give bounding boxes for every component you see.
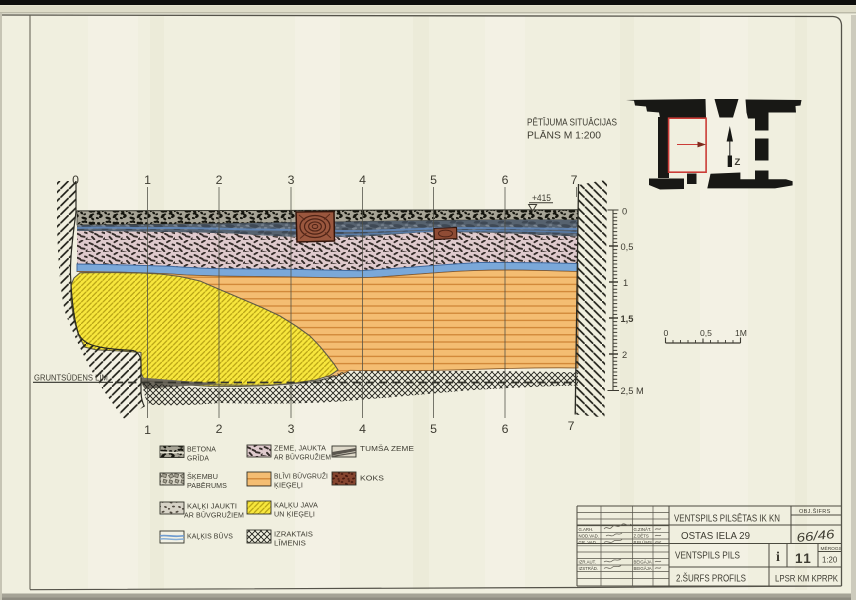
svg-text:P.BLŪMS: P.BLŪMS bbox=[634, 540, 652, 545]
svg-text:7: 7 bbox=[568, 419, 575, 433]
svg-text:PLĀNS M 1:200: PLĀNS M 1:200 bbox=[527, 130, 601, 142]
svg-text:i: i bbox=[776, 550, 780, 565]
svg-text:VENTSPILS PILSĒTAS IK KN: VENTSPILS PILSĒTAS IK KN bbox=[674, 513, 780, 525]
svg-text:LĪMENIS: LĪMENIS bbox=[274, 539, 306, 548]
svg-text:2: 2 bbox=[216, 173, 223, 187]
svg-text:LPSR KM KPRPK: LPSR KM KPRPK bbox=[775, 573, 839, 584]
svg-text:BEIGĀJA: BEIGĀJA bbox=[634, 560, 652, 565]
svg-text:2: 2 bbox=[216, 422, 223, 436]
svg-text:KAĻĶIS BŪVS: KAĻĶIS BŪVS bbox=[187, 532, 233, 541]
svg-text:IZRAKTAIS: IZRAKTAIS bbox=[274, 530, 313, 539]
svg-text:0: 0 bbox=[664, 328, 669, 338]
svg-text:VENTSPILS PILS: VENTSPILS PILS bbox=[675, 551, 740, 562]
svg-text:Z.DĒTS: Z.DĒTS bbox=[634, 534, 649, 539]
svg-text:2: 2 bbox=[622, 350, 627, 360]
svg-text:PĒTĪJUMA SITUĀCIJAS: PĒTĪJUMA SITUĀCIJAS bbox=[527, 117, 617, 129]
svg-text:KOKS: KOKS bbox=[360, 474, 384, 483]
svg-text:2.ŠURFS PROFILS: 2.ŠURFS PROFILS bbox=[676, 572, 746, 585]
svg-text:AR BŪVGRUŽIEM: AR BŪVGRUŽIEM bbox=[184, 511, 244, 520]
svg-text:AR BŪVGRUŽIEM: AR BŪVGRUŽIEM bbox=[274, 453, 331, 462]
svg-text:3: 3 bbox=[288, 422, 295, 436]
svg-text:1M: 1M bbox=[735, 328, 747, 338]
svg-text:11: 11 bbox=[795, 551, 812, 566]
svg-text:UN ĶIEĢEĻI: UN ĶIEĢEĻI bbox=[274, 510, 315, 519]
svg-text:BETONA: BETONA bbox=[187, 445, 217, 454]
svg-text:IZSTRĀD.: IZSTRĀD. bbox=[579, 566, 599, 571]
svg-text:0,5: 0,5 bbox=[621, 242, 634, 252]
svg-text:Z: Z bbox=[735, 157, 741, 168]
svg-text:ŠĶEMBU: ŠĶEMBU bbox=[187, 472, 218, 481]
svg-text:BLĪVI BŪVGRUŽI: BLĪVI BŪVGRUŽI bbox=[274, 472, 328, 481]
svg-text:OSTAS IELA 29: OSTAS IELA 29 bbox=[681, 531, 750, 542]
svg-text:NOD.VAD.: NOD.VAD. bbox=[579, 534, 599, 539]
svg-text:1: 1 bbox=[144, 423, 151, 437]
svg-text:G.ZINĀT.: G.ZINĀT. bbox=[634, 527, 652, 532]
svg-text:OBJ.ŠIFRS: OBJ.ŠIFRS bbox=[799, 508, 831, 515]
svg-text:1: 1 bbox=[623, 278, 628, 288]
svg-text:6: 6 bbox=[502, 173, 509, 187]
svg-text:GR. VAD.: GR. VAD. bbox=[579, 540, 598, 545]
svg-text:GRUNTSŪDENS LĪM.: GRUNTSŪDENS LĪM. bbox=[34, 374, 110, 383]
svg-text:TUMŠA ZEME: TUMŠA ZEME bbox=[360, 444, 414, 453]
svg-text:5: 5 bbox=[430, 173, 437, 187]
svg-text:KAĻĶI JAUKTI: KAĻĶI JAUKTI bbox=[187, 502, 237, 511]
svg-text:IZR.AUT.: IZR.AUT. bbox=[579, 560, 596, 565]
svg-text:MĒROGS: MĒROGS bbox=[821, 545, 842, 552]
svg-text:ZEME, JAUKTA: ZEME, JAUKTA bbox=[274, 444, 327, 453]
svg-text:KAĻĶU JAVA: KAĻĶU JAVA bbox=[274, 501, 319, 510]
svg-text:5: 5 bbox=[430, 422, 437, 436]
svg-text:6: 6 bbox=[502, 422, 509, 436]
svg-text:1,5: 1,5 bbox=[621, 314, 634, 324]
svg-text:3: 3 bbox=[288, 173, 295, 187]
svg-text:PABĒRUMS: PABĒRUMS bbox=[187, 481, 227, 490]
svg-text:7: 7 bbox=[571, 173, 578, 187]
svg-text:4: 4 bbox=[359, 173, 366, 187]
svg-text:2,5 M: 2,5 M bbox=[621, 386, 644, 396]
svg-text:4: 4 bbox=[359, 422, 366, 436]
svg-text:0: 0 bbox=[622, 207, 627, 217]
svg-text:BEIGĀJA: BEIGĀJA bbox=[634, 566, 652, 571]
svg-text:0,5: 0,5 bbox=[700, 328, 712, 338]
svg-text:GRĪDA: GRĪDA bbox=[187, 454, 210, 463]
svg-text:G.ARH.: G.ARH. bbox=[579, 527, 594, 532]
svg-text:1: 1 bbox=[144, 173, 151, 187]
svg-text:ĶIEĢEĻI: ĶIEĢEĻI bbox=[274, 481, 303, 490]
svg-text:1:20: 1:20 bbox=[822, 556, 838, 565]
